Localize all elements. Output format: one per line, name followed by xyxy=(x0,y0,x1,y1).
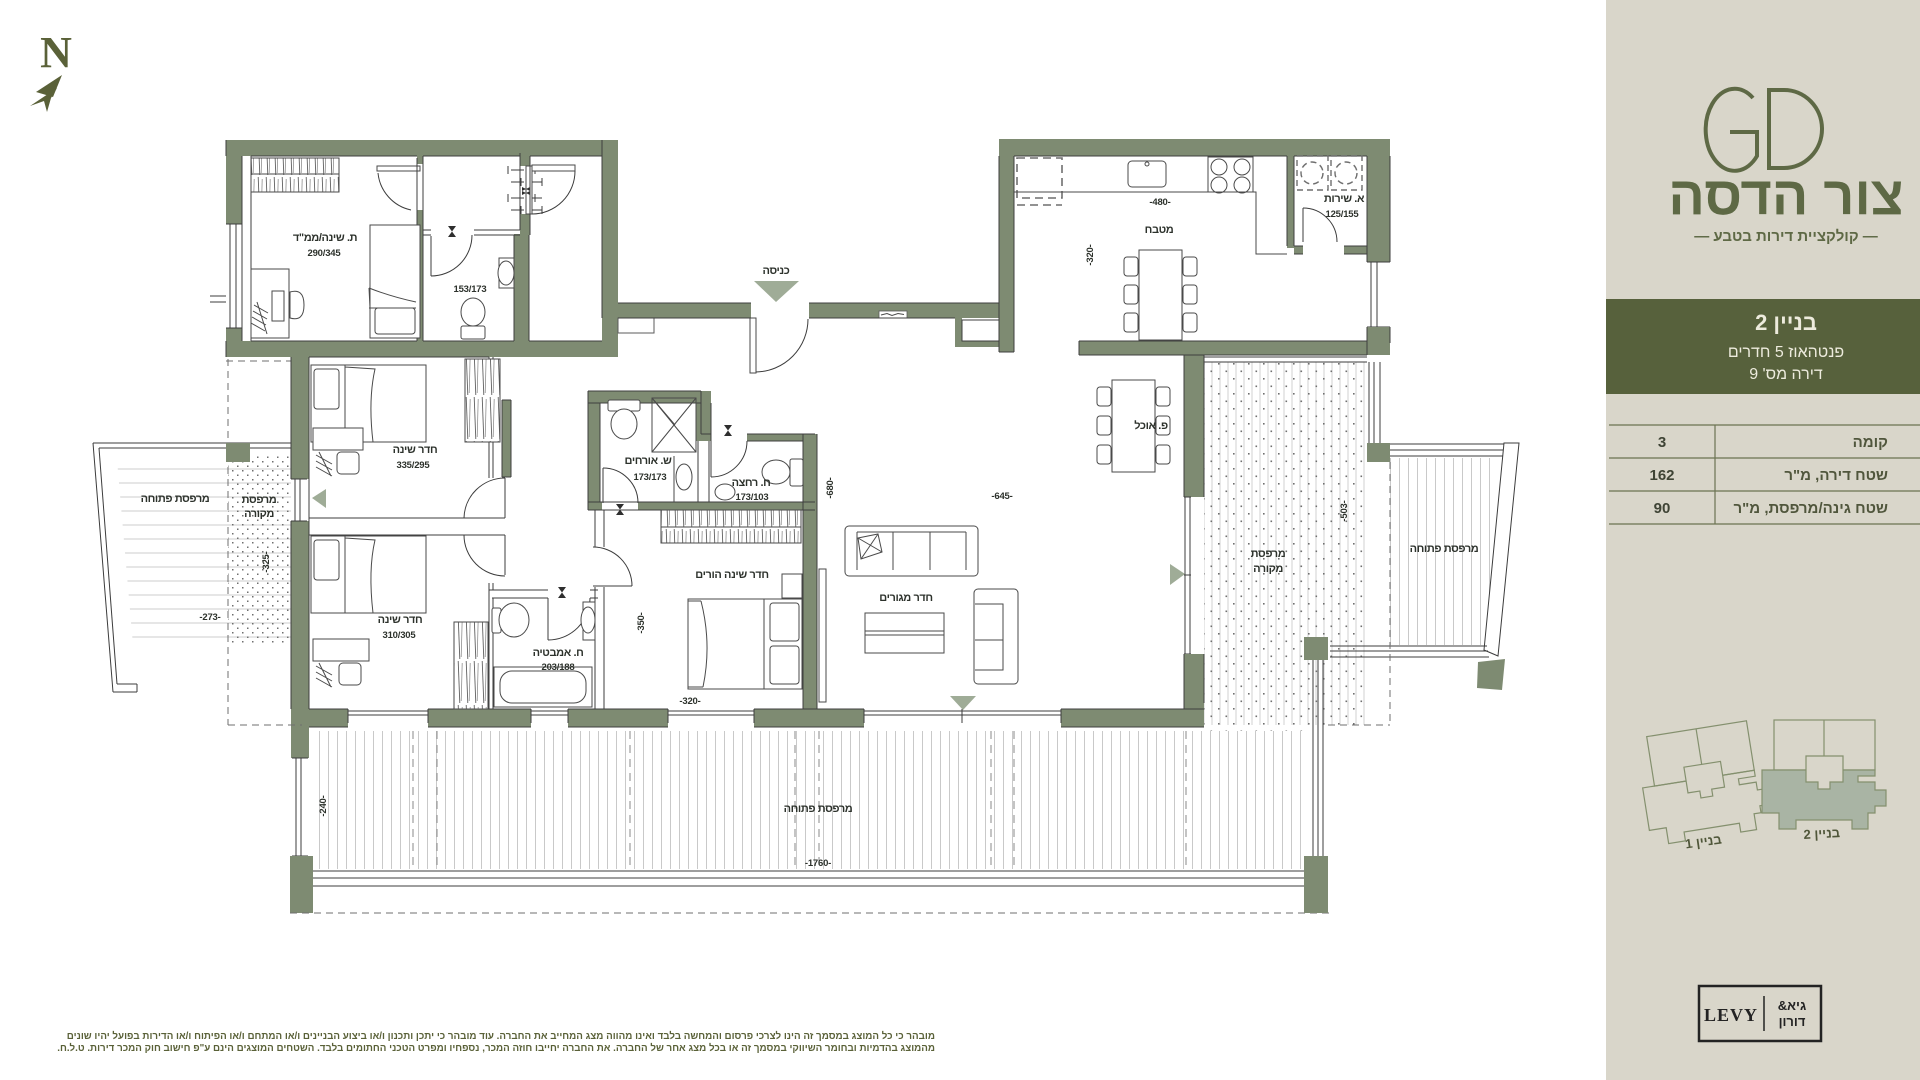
svg-text:מרפסת פתוחה: מרפסת פתוחה xyxy=(141,493,210,505)
svg-text:מרפסת פתוחה: מרפסת פתוחה xyxy=(784,803,853,815)
svg-text:162: 162 xyxy=(1649,467,1674,484)
svg-text:— קולקציית דירות בטבע —: — קולקציית דירות בטבע — xyxy=(1694,228,1878,245)
svg-text:מרפסת פתוחה: מרפסת פתוחה xyxy=(1410,543,1479,555)
svg-text:ח. אמבטיה: ח. אמבטיה xyxy=(533,647,584,659)
svg-text:בניין 2: בניין 2 xyxy=(1755,310,1817,335)
svg-text:-325-: -325- xyxy=(261,551,272,572)
svg-text:בניין 2: בניין 2 xyxy=(1803,825,1840,842)
svg-text:א. שירות: א. שירות xyxy=(1324,193,1365,205)
svg-text:3: 3 xyxy=(1658,434,1666,451)
svg-text:290/345: 290/345 xyxy=(308,248,342,259)
svg-text:-320-: -320- xyxy=(679,696,700,707)
svg-text:מרפסת: מרפסת xyxy=(242,494,277,506)
svg-text:צור הדסה: צור הדסה xyxy=(1668,166,1903,226)
svg-text:דירה מס' 9: דירה מס' 9 xyxy=(1749,366,1823,383)
svg-text:כניסה: כניסה xyxy=(763,265,790,277)
svg-text:153/173: 153/173 xyxy=(454,284,487,295)
svg-text:90: 90 xyxy=(1654,500,1671,517)
svg-text:203/188: 203/188 xyxy=(542,662,575,673)
svg-text:מהמוצג בהדמיות ובחומר השיווקי: מהמוצג בהדמיות ובחומר השיווקי במסמך זה א… xyxy=(57,1043,935,1054)
svg-text:גיא&: גיא& xyxy=(1778,998,1806,1013)
svg-text:מטבח: מטבח xyxy=(1145,224,1174,236)
svg-text:310/305: 310/305 xyxy=(383,630,417,641)
svg-text:חדר שינה: חדר שינה xyxy=(378,614,423,626)
svg-text:-503-: -503- xyxy=(1339,500,1350,521)
svg-text:LEVY: LEVY xyxy=(1704,1005,1758,1025)
svg-text:-645-: -645- xyxy=(991,491,1012,502)
svg-text:173/173: 173/173 xyxy=(634,472,667,483)
svg-text:ח. רחצה: ח. רחצה xyxy=(732,477,771,489)
svg-text:335/295: 335/295 xyxy=(397,460,431,471)
svg-text:פנטהאוז 5 חדרים: פנטהאוז 5 חדרים xyxy=(1728,344,1844,361)
svg-text:-240-: -240- xyxy=(318,795,329,816)
svg-text:N: N xyxy=(40,28,72,77)
svg-text:ת. שינה/ממ"ד: ת. שינה/ממ"ד xyxy=(293,232,358,244)
svg-text:-480-: -480- xyxy=(1149,197,1170,208)
svg-text:פ. אוכל: פ. אוכל xyxy=(1134,419,1168,432)
svg-text:מקורה: מקורה xyxy=(244,508,274,520)
svg-text:מרפסת: מרפסת xyxy=(1251,548,1286,560)
svg-text:חדר שינה הורים: חדר שינה הורים xyxy=(695,569,768,581)
svg-text:מקורה: מקורה xyxy=(1253,563,1283,575)
svg-text:-680-: -680- xyxy=(825,477,836,498)
svg-text:-273-: -273- xyxy=(199,612,220,623)
svg-text:דורון: דורון xyxy=(1779,1014,1806,1029)
svg-text:-1760-: -1760- xyxy=(805,858,831,869)
svg-text:חדר מגורים: חדר מגורים xyxy=(879,592,932,604)
svg-text:-320-: -320- xyxy=(1085,244,1096,265)
svg-text:שטח דירה, מ"ר: שטח דירה, מ"ר xyxy=(1784,467,1888,484)
svg-text:קומה: קומה xyxy=(1853,434,1888,451)
svg-text:173/103: 173/103 xyxy=(736,492,769,503)
svg-text:-350-: -350- xyxy=(636,612,647,633)
svg-text:ש. אורחים: ש. אורחים xyxy=(625,455,672,467)
svg-text:חדר שינה: חדר שינה xyxy=(393,444,438,456)
svg-text:125/155: 125/155 xyxy=(1326,209,1360,220)
svg-text:שטח גינה/מרפסת, מ"ר: שטח גינה/מרפסת, מ"ר xyxy=(1734,500,1889,517)
svg-text:מובהר כי כל המוצג במסמך זה הינ: מובהר כי כל המוצג במסמך זה הינו לצרכי פר… xyxy=(67,1031,935,1042)
